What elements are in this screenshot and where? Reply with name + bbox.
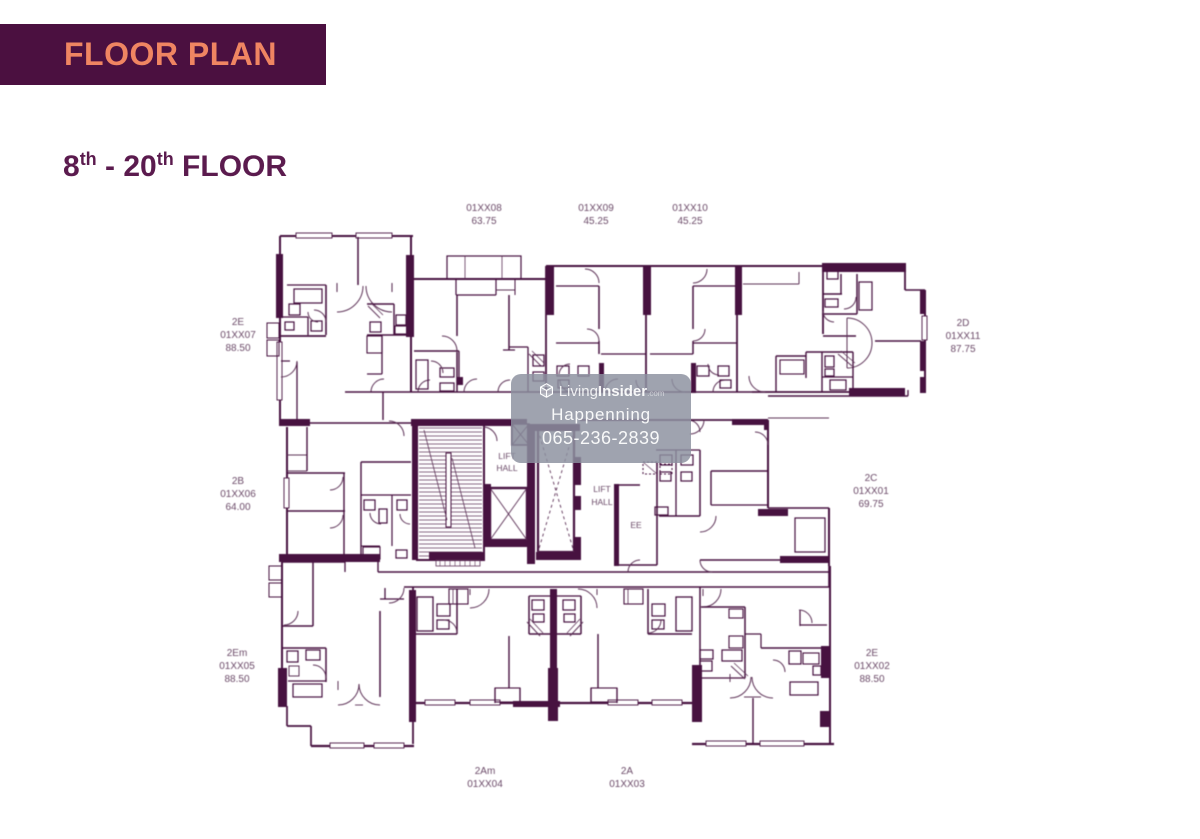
svg-text:69.75: 69.75: [858, 499, 883, 510]
svg-text:01XX08: 01XX08: [466, 203, 502, 214]
svg-text:2C: 2C: [865, 473, 878, 484]
svg-text:45.25: 45.25: [677, 216, 702, 227]
svg-text:HALL: HALL: [591, 497, 613, 507]
svg-text:2D: 2D: [957, 318, 970, 329]
svg-text:2Em: 2Em: [227, 648, 248, 659]
svg-text:87.75: 87.75: [950, 344, 975, 355]
svg-text:HALL: HALL: [496, 463, 518, 473]
svg-text:01XX11: 01XX11: [946, 331, 981, 342]
svg-text:88.50: 88.50: [225, 343, 250, 354]
svg-text:2E: 2E: [866, 648, 879, 659]
svg-text:01XX01: 01XX01: [853, 486, 889, 497]
svg-text:01XX06: 01XX06: [220, 489, 256, 500]
svg-text:45.25: 45.25: [583, 216, 608, 227]
svg-text:01XX05: 01XX05: [219, 661, 255, 672]
svg-text:2E: 2E: [232, 317, 245, 328]
svg-text:01XX03: 01XX03: [609, 779, 645, 790]
svg-text:01XX04: 01XX04: [467, 779, 503, 790]
svg-text:88.50: 88.50: [224, 674, 249, 685]
svg-text:01XX09: 01XX09: [578, 203, 614, 214]
svg-text:01XX02: 01XX02: [854, 661, 890, 672]
svg-text:63.75: 63.75: [471, 216, 496, 227]
svg-text:EE: EE: [630, 520, 642, 530]
svg-text:88.50: 88.50: [859, 674, 884, 685]
svg-text:64.00: 64.00: [225, 502, 250, 513]
svg-text:2Am: 2Am: [475, 766, 496, 777]
svg-text:01XX10: 01XX10: [672, 203, 708, 214]
svg-text:01XX07: 01XX07: [220, 330, 256, 341]
svg-text:LIFT: LIFT: [593, 484, 610, 494]
svg-text:2A: 2A: [621, 766, 634, 777]
svg-text:2B: 2B: [232, 476, 245, 487]
